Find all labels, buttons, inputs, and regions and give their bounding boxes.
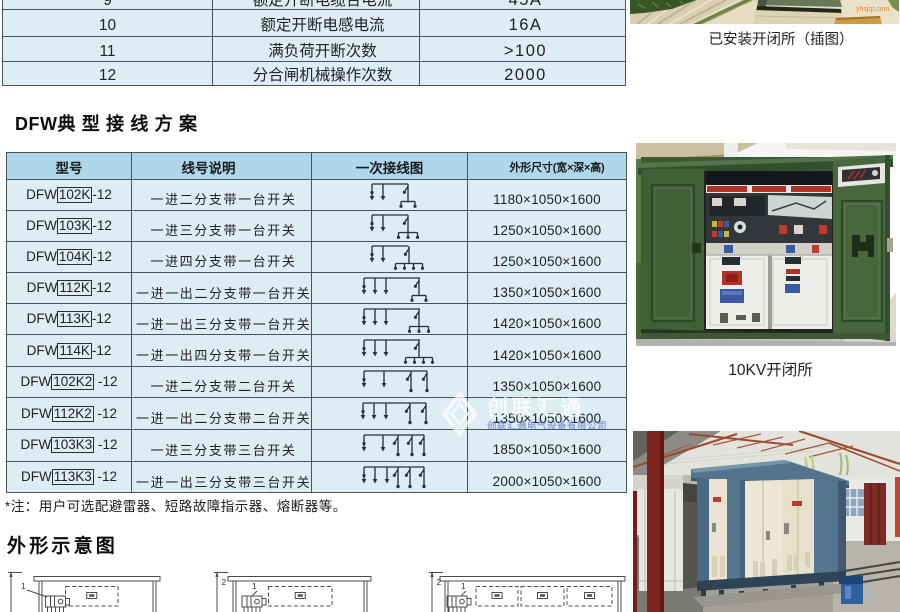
svg-text:1: 1 — [252, 581, 257, 591]
svg-text:1: 1 — [21, 581, 26, 591]
svg-text:yhsjqt.com: yhsjqt.com — [856, 6, 890, 13]
svg-text:2: 2 — [222, 577, 227, 587]
svg-text:2: 2 — [437, 577, 442, 587]
svg-text:1: 1 — [461, 581, 466, 591]
